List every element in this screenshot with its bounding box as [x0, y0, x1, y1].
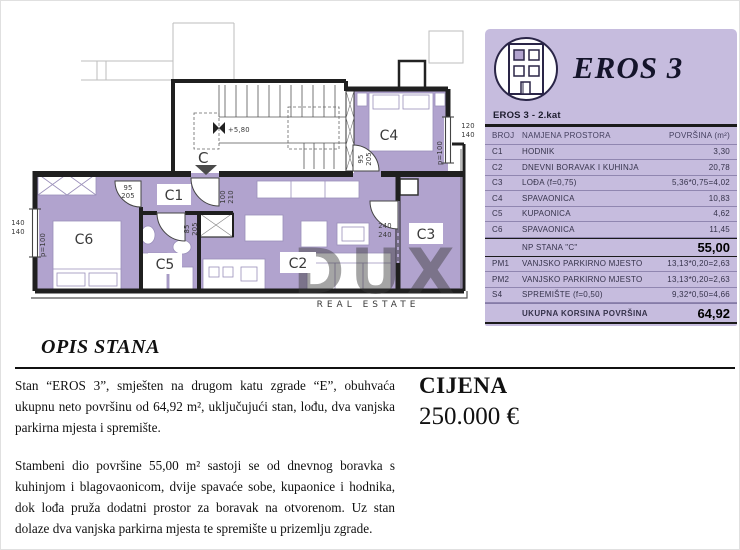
cell-broj: C6 — [485, 225, 522, 234]
cell-namjena: SPAVAONICA — [522, 225, 709, 234]
dim-entry-w: 100 — [219, 190, 227, 204]
col-broj: BROJ — [485, 131, 522, 140]
label-c2: C2 — [289, 256, 308, 272]
label-c1: C1 — [165, 188, 184, 204]
info-panel: EROS 3 EROS 3 - 2.kat BROJ NAMJENA PROST… — [485, 29, 737, 326]
cell-povrsina: 10,83 — [709, 194, 737, 203]
dim-c3-door-h: 240 — [378, 231, 392, 239]
cell-povrsina: 11,45 — [709, 225, 737, 234]
subtotal-row: NP STANA "C" 55,00 — [485, 238, 737, 257]
floorplan-drawing: +5,80 C — [1, 1, 486, 336]
dim-parapet-right: p=100 — [436, 141, 444, 165]
label-c5: C5 — [156, 257, 175, 273]
table-row: PM2 VANJSKO PARKIRNO MJESTO 13,13*0,20=2… — [485, 272, 737, 288]
cell-broj: PM1 — [485, 259, 522, 268]
pillar — [400, 179, 418, 195]
chimney — [399, 61, 425, 89]
dim-c3-door-w: 240 — [378, 222, 392, 230]
horizontal-rule — [15, 367, 735, 369]
dim-c6-door-h: 205 — [121, 192, 135, 200]
watermark: DUX — [293, 235, 461, 308]
table-row: C1 HODNIK 3,30 — [485, 145, 737, 161]
cell-namjena: LOĐA (f=0,75) — [522, 178, 672, 187]
table-row: C6 SPAVAONICA 11,45 — [485, 222, 737, 238]
cell-broj: C1 — [485, 147, 522, 156]
col-namjena: NAMJENA PROSTORA — [522, 131, 669, 140]
subtotal-value: 55,00 — [697, 240, 737, 255]
label-c3: C3 — [417, 227, 436, 243]
cell-povrsina: 13,13*0,20=2,63 — [667, 275, 737, 284]
panel-header: EROS 3 — [485, 29, 737, 107]
total-label: UKUPNA KORSINA POVRŠINA — [522, 309, 697, 318]
level-value: +5,80 — [228, 126, 250, 134]
cell-broj: C5 — [485, 209, 522, 218]
cell-broj: S4 — [485, 290, 522, 299]
table-header-row: BROJ NAMJENA PROSTORA POVRŠINA (m²) — [485, 127, 737, 145]
building-logo-icon — [493, 32, 559, 104]
cell-namjena: HODNIK — [522, 147, 713, 156]
dim-c6-window-w: 140 — [11, 219, 25, 227]
label-c6: C6 — [75, 232, 94, 248]
dim-c4-window-h: 140 — [461, 131, 475, 139]
description-paragraph-2: Stambeni dio površine 55,00 m² sastoji s… — [15, 455, 395, 539]
floor-label: EROS 3 - 2.kat — [485, 107, 737, 124]
total-row: UKUPNA KORSINA POVRŠINA 64,92 — [485, 303, 737, 324]
stairwell: +5,80 C — [173, 81, 346, 175]
dim-c6-door-w: 95 — [123, 184, 132, 192]
cell-povrsina: 3,30 — [713, 147, 737, 156]
dim-c6-window-h: 140 — [11, 228, 25, 236]
subtotal-label: NP STANA "C" — [522, 243, 697, 252]
price-value: 250.000 € — [419, 403, 519, 431]
table-row: C4 SPAVAONICA 10,83 — [485, 191, 737, 207]
dim-parapet-left: p=100 — [39, 233, 47, 257]
cell-namjena: DNEVNI BORAVAK I KUHINJA — [522, 163, 709, 172]
watermark-sub: REAL ESTATE — [317, 300, 420, 310]
cell-namjena: KUPAONICA — [522, 209, 713, 218]
total-value: 64,92 — [697, 306, 737, 321]
area-table: BROJ NAMJENA PROSTORA POVRŠINA (m²) C1 H… — [485, 127, 737, 325]
cell-namjena: VANJSKO PARKIRNO MJESTO — [522, 259, 667, 268]
cell-broj: PM2 — [485, 275, 522, 284]
flyer-page: +5,80 C — [0, 0, 740, 550]
dim-c5-door-h: 205 — [191, 222, 199, 236]
dim-entry-h: 210 — [227, 190, 235, 204]
description-heading: OPIS STANA — [41, 336, 160, 359]
description-paragraph-1: Stan “EROS 3”, smješten na drugom katu z… — [15, 375, 395, 438]
price-block: CIJENA 250.000 € — [419, 373, 519, 431]
dim-c4-door-h: 205 — [365, 152, 373, 166]
cell-povrsina: 20,78 — [709, 163, 737, 172]
cell-povrsina: 9,32*0,50=4,66 — [672, 290, 737, 299]
dim-c4-door-w: 95 — [357, 154, 365, 163]
cell-broj: C3 — [485, 178, 522, 187]
label-c4: C4 — [380, 128, 399, 144]
description-text: Stan “EROS 3”, smješten na drugom katu z… — [15, 375, 395, 550]
cell-povrsina: 4,62 — [713, 209, 737, 218]
table-row: C3 LOĐA (f=0,75) 5,36*0,75=4,02 — [485, 176, 737, 192]
cell-broj: C2 — [485, 163, 522, 172]
project-title: EROS 3 — [573, 50, 683, 86]
col-povrsina: POVRŠINA (m²) — [669, 131, 737, 140]
cell-broj: C4 — [485, 194, 522, 203]
cell-povrsina: 5,36*0,75=4,02 — [672, 178, 737, 187]
cell-povrsina: 13,13*0,20=2,63 — [667, 259, 737, 268]
dim-c4-window-w: 120 — [461, 122, 475, 130]
cell-namjena: SPREMIŠTE (f=0,50) — [522, 290, 672, 299]
table-row: C2 DNEVNI BORAVAK I KUHINJA 20,78 — [485, 160, 737, 176]
table-row: C5 KUPAONICA 4,62 — [485, 207, 737, 223]
table-row: S4 SPREMIŠTE (f=0,50) 9,32*0,50=4,66 — [485, 288, 737, 304]
closet — [199, 213, 233, 237]
entrance-marker: C — [198, 149, 208, 167]
dim-c5-door-w: 85 — [183, 224, 191, 233]
cell-namjena: VANJSKO PARKIRNO MJESTO — [522, 275, 667, 284]
table-row: PM1 VANJSKO PARKIRNO MJESTO 13,13*0,20=2… — [485, 257, 737, 273]
price-label: CIJENA — [419, 373, 519, 399]
cell-namjena: SPAVAONICA — [522, 194, 709, 203]
